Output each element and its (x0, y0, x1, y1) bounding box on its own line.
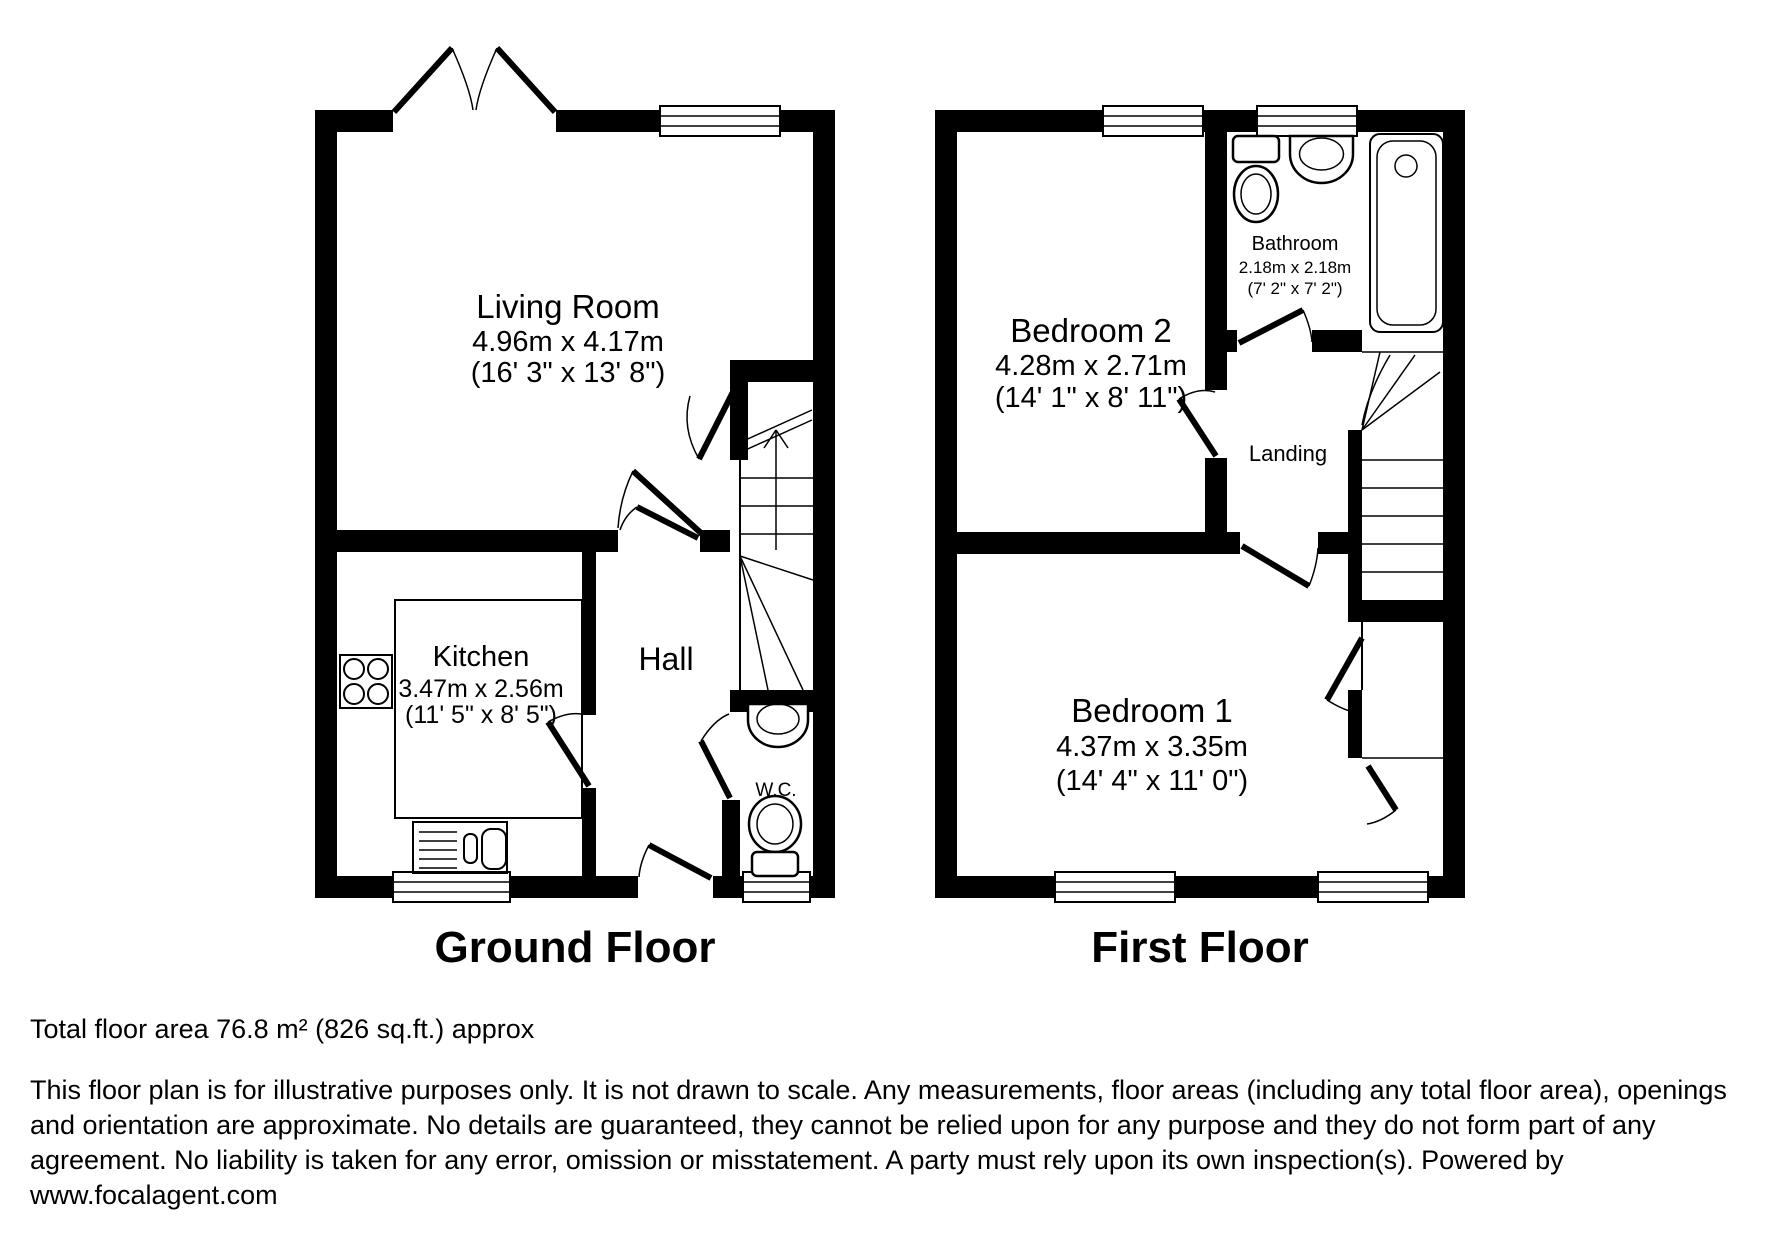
wc-basin-icon (748, 704, 808, 747)
bathtub-icon (1370, 134, 1443, 332)
footer: Total floor area 76.8 m² (826 sq.ft.) ap… (30, 1012, 1746, 1213)
disclaimer-text: This floor plan is for illustrative purp… (30, 1073, 1746, 1213)
first-floor-title: First Floor (1091, 923, 1309, 972)
bedroom1-dim-metric: 4.37m x 3.35m (1056, 731, 1248, 763)
living-room-label: Living Room (476, 288, 659, 325)
stairs-ground-floor (740, 410, 813, 690)
basin-icon (1290, 136, 1353, 183)
stairs-first-floor (1362, 352, 1443, 758)
bathroom-dim-imperial: (7' 2" x 7' 2") (1247, 279, 1342, 298)
bedroom1-window (1055, 872, 1175, 902)
bathroom-door (1239, 310, 1312, 343)
living-room-dim-imperial: (16' 3" x 13' 8") (471, 357, 665, 389)
first-floor-rear-window (1318, 872, 1428, 902)
floorplan-diagram: Living Room 4.96m x 4.17m (16' 3" x 13' … (0, 0, 1771, 990)
kitchen-window (393, 872, 510, 902)
bedroom2-window (1103, 106, 1203, 136)
hall-label: Hall (638, 641, 693, 677)
bedroom1-dim-imperial: (14' 4" x 11' 0") (1056, 765, 1248, 797)
bedroom1-door (1242, 546, 1318, 586)
ground-floor-plan: Living Room 4.96m x 4.17m (16' 3" x 13' … (315, 48, 835, 972)
bathroom-window (1257, 106, 1357, 136)
wc-toilet-icon (749, 796, 801, 876)
kitchen-dim-imperial: (11' 5" x 8' 5") (405, 701, 557, 729)
living-room-window (660, 106, 780, 136)
toilet-icon (1233, 136, 1279, 222)
airing-cupboard-door (1367, 766, 1396, 824)
kitchen-sink-icon (413, 822, 507, 873)
floorplan-page: { "floors": { "ground": { "title": "Grou… (0, 0, 1771, 1239)
kitchen-dim-metric: 3.47m x 2.56m (398, 675, 563, 703)
bedroom2-dim-metric: 4.28m x 2.71m (995, 350, 1187, 382)
living-room-dim-metric: 4.96m x 4.17m (472, 326, 664, 358)
ground-floor-title: Ground Floor (434, 923, 715, 972)
wc-door (701, 714, 730, 798)
bathroom-label: Bathroom (1252, 233, 1339, 255)
bedroom2-dim-imperial: (14' 1" x 8' 11") (995, 382, 1187, 414)
front-door (639, 845, 711, 878)
wc-label: W.C. (755, 780, 796, 801)
bedroom1-label: Bedroom 1 (1071, 692, 1232, 729)
living-room-door (618, 388, 735, 538)
first-floor-plan: Bedroom 2 4.28m x 2.71m (14' 1" x 8' 11"… (935, 106, 1465, 972)
total-floor-area-text: Total floor area 76.8 m² (826 sq.ft.) ap… (30, 1012, 1746, 1047)
bathroom-dim-metric: 2.18m x 2.18m (1239, 258, 1351, 277)
stove-icon (340, 655, 392, 708)
bedroom2-label: Bedroom 2 (1010, 312, 1171, 349)
french-doors (394, 48, 555, 112)
kitchen-label: Kitchen (433, 641, 530, 673)
landing-label: Landing (1249, 441, 1327, 466)
